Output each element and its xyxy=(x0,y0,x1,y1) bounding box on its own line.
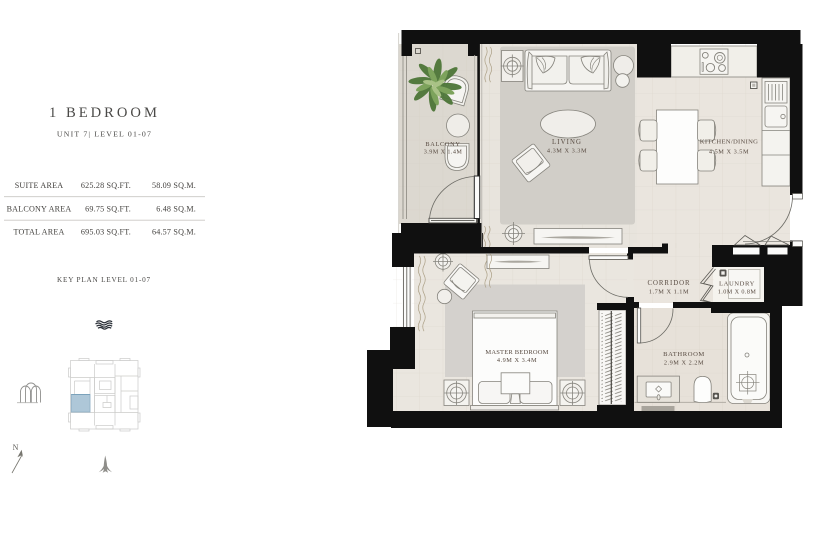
svg-text:MASTER BEDROOM: MASTER BEDROOM xyxy=(485,349,548,356)
svg-text:4.3M X 3.3M: 4.3M X 3.3M xyxy=(547,148,587,155)
svg-text:6.48 SQ.M.: 6.48 SQ.M. xyxy=(156,205,196,214)
svg-text:625.28 SQ.FT.: 625.28 SQ.FT. xyxy=(81,181,131,190)
svg-text:LAUNDRY: LAUNDRY xyxy=(719,281,755,288)
svg-text:UNIT 7| LEVEL 01-07: UNIT 7| LEVEL 01-07 xyxy=(57,130,152,139)
svg-text:58.09 SQ.M.: 58.09 SQ.M. xyxy=(152,181,196,190)
svg-text:1.7M X 1.1M: 1.7M X 1.1M xyxy=(649,289,689,296)
svg-text:BATHROOM: BATHROOM xyxy=(663,351,705,358)
svg-text:CORRIDOR: CORRIDOR xyxy=(647,280,690,287)
svg-text:LIVING: LIVING xyxy=(552,139,582,146)
svg-text:1.0M X 0.8M: 1.0M X 0.8M xyxy=(718,289,757,296)
svg-text:N: N xyxy=(13,443,19,452)
svg-text:TOTAL AREA: TOTAL AREA xyxy=(13,228,64,237)
svg-text:695.03 SQ.FT.: 695.03 SQ.FT. xyxy=(81,228,131,237)
svg-text:BALCONY AREA: BALCONY AREA xyxy=(7,205,72,214)
svg-text:3.9M X 1.4M: 3.9M X 1.4M xyxy=(424,149,463,156)
svg-text:BALCONY: BALCONY xyxy=(425,141,460,148)
svg-text:KEY PLAN LEVEL 01-07: KEY PLAN LEVEL 01-07 xyxy=(57,276,151,284)
svg-text:69.75 SQ.FT.: 69.75 SQ.FT. xyxy=(85,205,131,214)
svg-text:1 BEDROOM: 1 BEDROOM xyxy=(49,105,160,121)
svg-text:2.9M X 2.2M: 2.9M X 2.2M xyxy=(664,360,704,367)
svg-text:4.9M X 3.4M: 4.9M X 3.4M xyxy=(497,357,537,364)
svg-text:4.5M X 3.5M: 4.5M X 3.5M xyxy=(709,149,749,156)
svg-text:KITCHEN/DINING: KITCHEN/DINING xyxy=(700,139,758,146)
svg-text:SUITE AREA: SUITE AREA xyxy=(15,181,64,190)
svg-text:64.57 SQ.M.: 64.57 SQ.M. xyxy=(152,228,196,237)
